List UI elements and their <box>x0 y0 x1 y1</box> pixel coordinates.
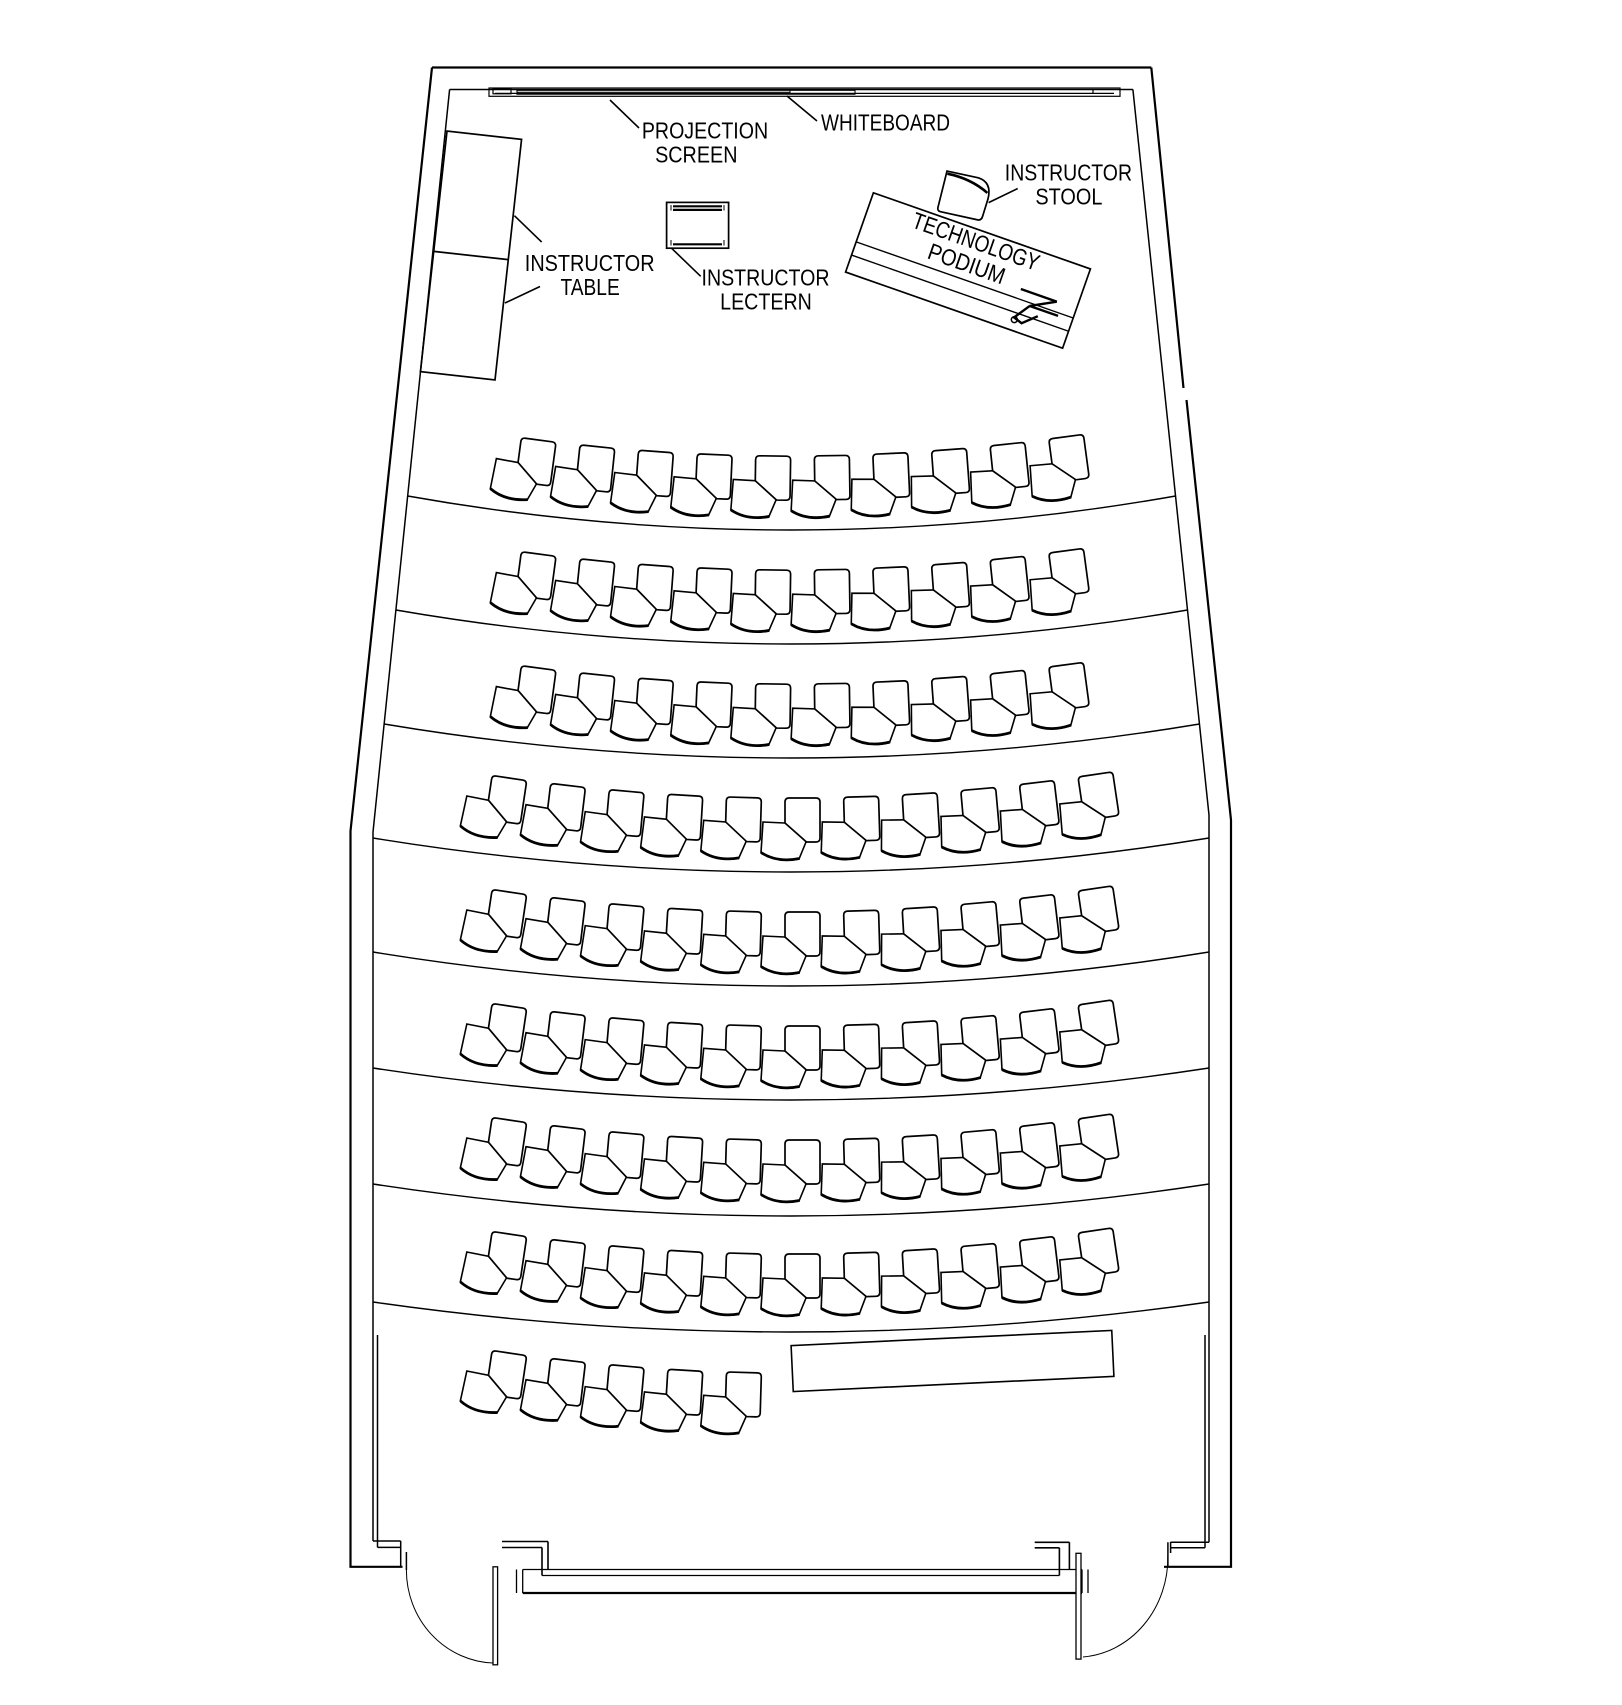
svg-text:TABLE: TABLE <box>560 274 619 300</box>
svg-text:LECTERN: LECTERN <box>720 288 812 314</box>
svg-text:WHITEBOARD: WHITEBOARD <box>821 109 950 135</box>
svg-text:SCREEN: SCREEN <box>655 141 737 167</box>
svg-text:STOOL: STOOL <box>1035 184 1102 210</box>
svg-text:INSTRUCTOR: INSTRUCTOR <box>1005 160 1132 186</box>
svg-text:PROJECTION: PROJECTION <box>642 118 768 144</box>
svg-text:INSTRUCTOR: INSTRUCTOR <box>702 265 830 291</box>
svg-text:INSTRUCTOR: INSTRUCTOR <box>525 250 655 276</box>
